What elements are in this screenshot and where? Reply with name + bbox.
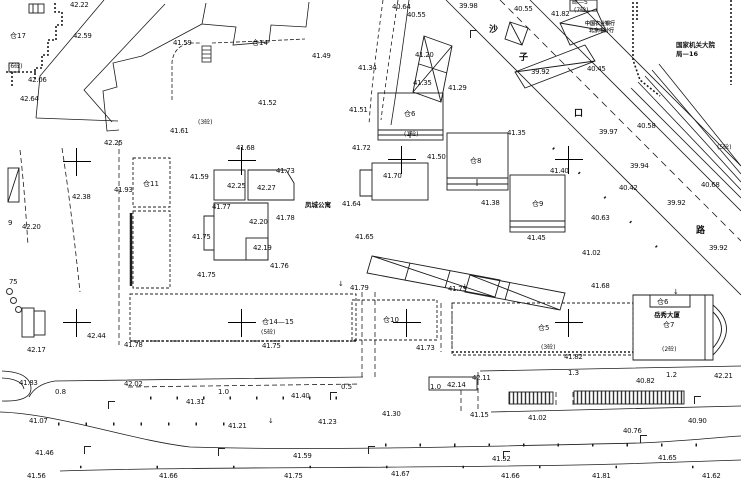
spot-elevation-label: 41.81 (592, 473, 611, 480)
street-name-char: 沙 (489, 26, 498, 35)
spot-elevation-label: 41.64 (342, 201, 361, 208)
spot-elevation-label: 42.25 (104, 140, 123, 147)
distance-label: 0.5 (341, 384, 352, 391)
flow-arrow-symbol: ↓ (462, 284, 468, 291)
material-annotation: 邮—5 (572, 0, 588, 6)
streetlamp-symbol (330, 392, 337, 400)
spot-elevation-label: 41.29 (448, 85, 467, 92)
spot-elevation-label: 41.75 (192, 234, 211, 241)
spot-elevation-label: 41.70 (383, 173, 402, 180)
material-annotation: (1砼) (404, 132, 419, 138)
material-annotation: (5砼) (717, 145, 732, 151)
spot-elevation-label: 41.23 (318, 419, 337, 426)
spot-elevation-label: 40.42 (619, 185, 638, 192)
spot-elevation-label: 42.19 (253, 245, 272, 252)
spot-elevation-label: 41.82 (551, 11, 570, 18)
streetlamp-symbol (694, 396, 701, 404)
spot-elevation-label: 41.73 (416, 345, 435, 352)
spot-elevation-label: 41.76 (270, 263, 289, 270)
spot-elevation-label: 41.56 (27, 473, 46, 480)
grid-cross (393, 309, 421, 337)
material-annotation: (3砼) (541, 345, 556, 351)
spot-elevation-label: 40.55 (407, 12, 426, 19)
tree-symbol (6, 288, 13, 295)
spot-elevation-label: 40.58 (637, 123, 656, 130)
tree-symbol (15, 306, 22, 313)
spot-elevation-label: 42.22 (70, 2, 89, 9)
building-number-label: 仓6 (404, 111, 415, 118)
spot-elevation-label: 42.38 (72, 194, 91, 201)
material-annotation: (6砼) (8, 64, 23, 70)
spot-elevation-label: 41.78 (276, 215, 295, 222)
spot-elevation-label: 39.92 (531, 69, 550, 76)
building-number-label: 仓7 (663, 322, 674, 329)
spot-elevation-label: 40.76 (623, 428, 642, 435)
spot-elevation-label: 39.97 (599, 129, 618, 136)
flow-arrow-symbol: ↓ (673, 289, 679, 296)
spot-elevation-label: 42.64 (20, 96, 39, 103)
distance-label: 1.3 (568, 370, 579, 377)
spot-elevation-label: 42.59 (73, 33, 92, 40)
spot-elevation-label: 41.15 (470, 412, 489, 419)
spot-elevation-label: 39.98 (459, 3, 478, 10)
spot-elevation-label: 41.61 (170, 128, 189, 135)
spot-elevation-label: 41.62 (702, 473, 721, 480)
spot-elevation-label: 41.35 (413, 80, 432, 87)
spot-elevation-label: 41.02 (582, 250, 601, 257)
distance-label: 1.0 (430, 384, 441, 391)
spot-elevation-label: 41.66 (159, 473, 178, 480)
spot-elevation-label: 41.65 (658, 455, 677, 462)
spot-elevation-label: 41.21 (228, 423, 247, 430)
spot-elevation-label: 41.78 (124, 342, 143, 349)
survey-map: 42.2242.5941.5942.0642.6442.2541.6141.49… (0, 0, 741, 480)
streetlamp-symbol (640, 435, 647, 443)
building-number-label: 仓14—15 (262, 319, 294, 326)
spot-elevation-label: 40.55 (514, 6, 533, 13)
flow-arrow-symbol: ↓ (338, 281, 344, 288)
spot-elevation-label: 41.46 (35, 450, 54, 457)
streetlamp-symbol (470, 30, 477, 38)
spot-elevation-label: 41.34 (358, 65, 377, 72)
spot-elevation-label: 41.79 (350, 285, 369, 292)
flow-arrow-symbol: ↓ (268, 418, 274, 425)
grid-cross (63, 148, 91, 176)
spot-elevation-label: 41.45 (527, 235, 546, 242)
spot-elevation-label: 41.77 (212, 204, 231, 211)
spot-elevation-label: 41.59 (190, 174, 209, 181)
spot-elevation-label: 41.72 (352, 145, 371, 152)
spot-elevation-label: 40.82 (636, 378, 655, 385)
grid-cross (228, 147, 256, 175)
spot-elevation-label: 41.20 (415, 52, 434, 59)
spot-elevation-label: 40.90 (688, 418, 707, 425)
grid-cross (555, 309, 583, 337)
spot-elevation-label: 9 (8, 220, 12, 227)
spot-elevation-label: 41.83 (19, 380, 38, 387)
spot-elevation-label: 41.73 (276, 168, 295, 175)
material-annotation: (3砼) (198, 120, 213, 126)
spot-elevation-label: 39.92 (709, 245, 728, 252)
distance-label: 1.0 (218, 389, 229, 396)
spot-elevation-label: 42.21 (714, 373, 733, 380)
spot-elevation-label: 42.11 (472, 375, 491, 382)
place-name-label: 北京市分行 (589, 29, 614, 34)
spot-elevation-label: 41.31 (186, 399, 205, 406)
place-name-label: 岳秀大厦 (654, 312, 680, 319)
spot-elevation-label: 41.38 (481, 200, 500, 207)
spot-elevation-label: 41.67 (391, 471, 410, 478)
spot-elevation-label: 41.35 (507, 130, 526, 137)
spot-elevation-label: 40.64 (392, 4, 411, 11)
distance-label: 1.2 (666, 372, 677, 379)
spot-elevation-label: 41.68 (591, 283, 610, 290)
spot-elevation-label: 41.93 (114, 187, 133, 194)
spot-elevation-label: 41.02 (528, 415, 547, 422)
spot-elevation-label: 42.14 (447, 382, 466, 389)
spot-elevation-label: 75 (9, 279, 17, 286)
building-number-label: 仓8 (470, 158, 481, 165)
streetlamp-symbol (84, 446, 91, 454)
place-name-label: 中国农业银行 (585, 22, 615, 27)
place-name-label: 局—16 (676, 51, 698, 58)
distance-label: 0.8 (55, 389, 66, 396)
building-number-label: 仓9 (532, 201, 543, 208)
spot-elevation-label: 42.20 (22, 224, 41, 231)
material-annotation: (5砼) (261, 330, 276, 336)
place-name-label: 凤城公寓 (305, 202, 331, 209)
street-name-char: 路 (696, 227, 705, 236)
spot-elevation-label: 42.06 (28, 77, 47, 84)
spot-elevation-label: 41.50 (427, 154, 446, 161)
grid-cross (228, 309, 256, 337)
labels-layer: 42.2242.5941.5942.0642.6442.2541.6141.49… (0, 0, 741, 480)
spot-elevation-label: 42.17 (27, 347, 46, 354)
street-name-char: 子 (519, 54, 528, 63)
building-number-label: 仓5 (538, 325, 549, 332)
spot-elevation-label: 41.49 (312, 53, 331, 60)
building-number-label: 仓11 (143, 181, 159, 188)
spot-elevation-label: 42.02 (124, 381, 143, 388)
spot-elevation-label: 41.59 (173, 40, 192, 47)
spot-elevation-label: 41.30 (382, 411, 401, 418)
streetlamp-symbol (368, 446, 375, 454)
building-number-label: 仓6 (657, 299, 668, 306)
spot-elevation-label: 41.52 (258, 100, 277, 107)
spot-elevation-label: 42.25 (227, 183, 246, 190)
spot-elevation-label: 40.45 (587, 66, 606, 73)
streetlamp-symbol (108, 401, 115, 409)
material-annotation: (2砼) (662, 347, 677, 353)
street-name-char: 口 (574, 110, 583, 119)
spot-elevation-label: 41.59 (293, 453, 312, 460)
spot-elevation-label: 41.75 (262, 343, 281, 350)
grid-cross (555, 146, 583, 174)
spot-elevation-label: 41.07 (29, 418, 48, 425)
spot-elevation-label: 41.66 (501, 473, 520, 480)
grid-cross (388, 146, 416, 174)
spot-elevation-label: 41.40 (291, 393, 310, 400)
spot-elevation-label: 40.68 (701, 182, 720, 189)
spot-elevation-label: 41.75 (197, 272, 216, 279)
building-number-label: 仓17 (10, 33, 26, 40)
spot-elevation-label: 41.65 (355, 234, 374, 241)
spot-elevation-label: 41.75 (284, 473, 303, 480)
streetlamp-symbol (218, 448, 225, 456)
spot-elevation-label: 42.27 (257, 185, 276, 192)
spot-elevation-label: 42.20 (249, 219, 268, 226)
streetlamp-symbol (503, 451, 510, 459)
spot-elevation-label: 39.92 (667, 200, 686, 207)
spot-elevation-label: 40.63 (591, 215, 610, 222)
material-annotation: (7砼) (574, 8, 589, 14)
spot-elevation-label: 39.94 (630, 163, 649, 170)
building-number-label: 仓14 (252, 40, 268, 47)
spot-elevation-label: 41.51 (349, 107, 368, 114)
spot-elevation-label: 41.82 (564, 354, 583, 361)
place-name-label: 国家机关大院 (676, 42, 715, 49)
grid-cross (63, 309, 91, 337)
tree-symbol (10, 297, 17, 304)
